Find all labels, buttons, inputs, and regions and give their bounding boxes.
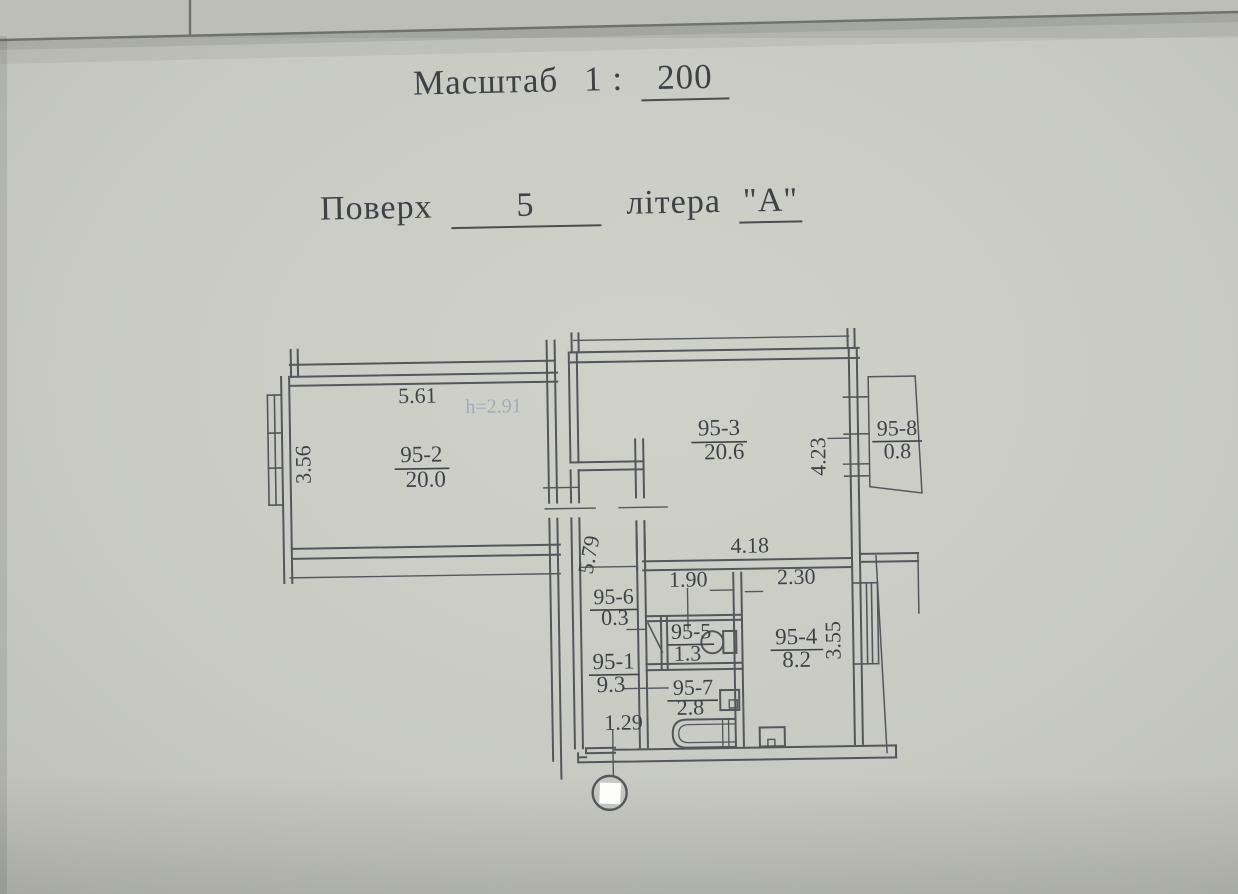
- room-95-8-area: 0.8: [883, 438, 911, 463]
- room-95-7-area: 2.8: [676, 694, 704, 719]
- dim-kitchen-width: 2.30: [777, 564, 816, 590]
- scale-label: Масштаб: [413, 60, 559, 102]
- dim-room2-width: 5.61: [398, 383, 437, 409]
- room-95-3-number: 95-3: [698, 415, 741, 441]
- paper-background: [0, 0, 1238, 894]
- room-95-1-number: 95-1: [592, 648, 635, 674]
- room-95-6-area: 0.3: [601, 605, 629, 630]
- floor-value: 5: [450, 185, 601, 229]
- scale-value: 200: [641, 56, 729, 101]
- room-95-2-number: 95-2: [400, 441, 443, 467]
- room-95-4-area: 8.2: [782, 647, 811, 672]
- room-95-1-area: 9.3: [596, 672, 625, 697]
- room-95-3-area: 20.6: [704, 439, 745, 465]
- letter-label: літера: [626, 183, 721, 222]
- letter-value: "А": [739, 181, 803, 223]
- ceiling-height-note: h=2.91: [465, 395, 522, 418]
- dim-entry-width: 1.29: [604, 709, 643, 735]
- scale-ratio: 1 :: [584, 59, 624, 99]
- dim-kitchen-depth: 3.55: [820, 621, 846, 660]
- room-95-4-number: 95-4: [775, 624, 818, 650]
- dim-room3-bottom-width: 4.18: [730, 532, 769, 558]
- floor-plan: 95-2 20.0 95-3 20.6 95-8 0.8 95-6 0.3 95…: [0, 0, 1238, 894]
- room-95-5-area: 1.3: [674, 640, 702, 665]
- scale-line: Масштаб1 :200: [413, 56, 730, 106]
- scanned-floorplan-page: 95-2 20.0 95-3 20.6 95-8 0.8 95-6 0.3 95…: [0, 0, 1238, 894]
- floor-label: Поверх: [320, 188, 433, 227]
- dim-room2-depth: 3.56: [290, 445, 316, 484]
- room-95-8-number: 95-8: [877, 415, 918, 441]
- left-edge-shadow: [0, 36, 7, 894]
- room-95-2-area: 20.0: [405, 466, 446, 492]
- dim-wc-block-width: 1.90: [669, 566, 708, 592]
- dim-room3-depth: 4.23: [805, 437, 831, 476]
